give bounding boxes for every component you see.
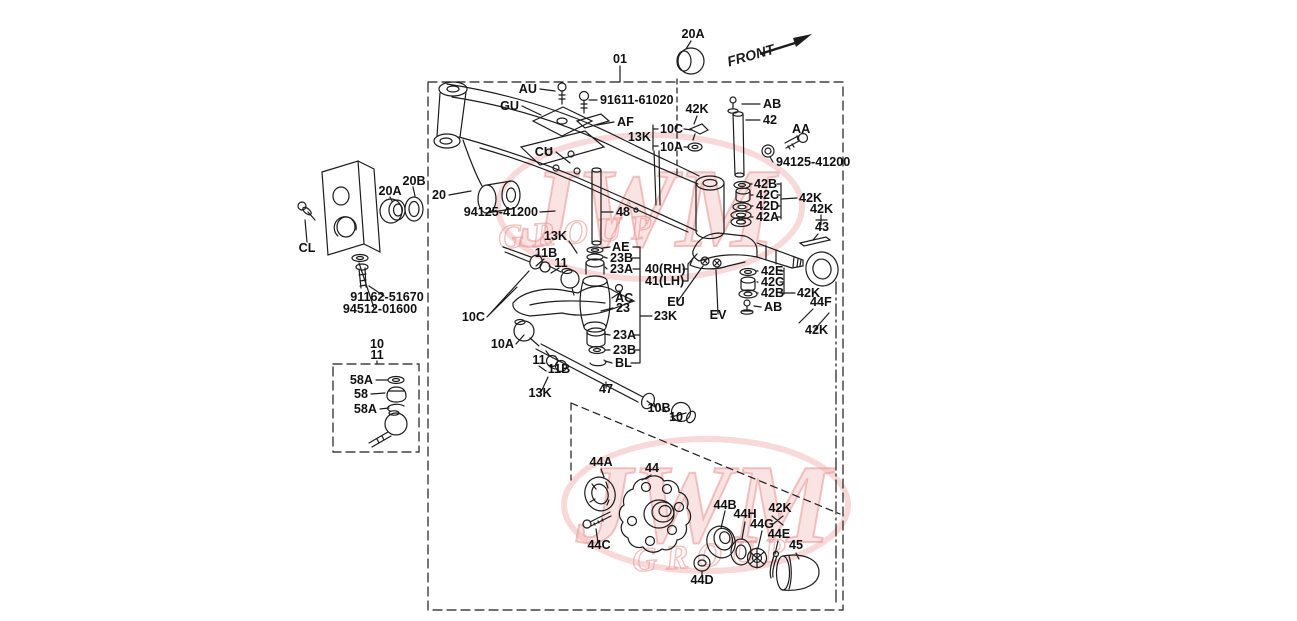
part-label-11: 11 bbox=[532, 353, 545, 367]
front-label: FRONT bbox=[725, 40, 777, 69]
part-label-41-lh-: 41(LH) bbox=[645, 274, 684, 288]
part-label-58: 58 bbox=[354, 387, 368, 401]
part-label-ab: AB bbox=[764, 300, 782, 314]
part-label-23b: 23B bbox=[613, 343, 636, 357]
front-direction-indicator: FRONT bbox=[725, 34, 812, 70]
part-label-11b: 11B bbox=[548, 362, 570, 376]
part-label-44a: 44A bbox=[589, 455, 612, 469]
part-label-42k: 42K bbox=[768, 501, 791, 515]
spring-seat-bolt-au bbox=[558, 83, 566, 104]
part-label-58a: 58A bbox=[354, 402, 377, 416]
part-label-13k: 13K bbox=[628, 130, 651, 144]
part-label-94125-41200: 94125-41200 bbox=[464, 205, 538, 219]
part-label-42k: 42K bbox=[810, 202, 833, 216]
lower-kingpin-bushings bbox=[739, 269, 757, 315]
part-label-42b: 42B bbox=[761, 286, 784, 300]
part-label-47: 47 bbox=[599, 382, 613, 396]
part-label-44d: 44D bbox=[690, 573, 713, 587]
part-label-20a: 20A bbox=[681, 27, 704, 41]
part-label-20a: 20A bbox=[378, 184, 401, 198]
part-label-44e: 44E bbox=[768, 527, 790, 541]
part-label-11: 11 bbox=[370, 348, 383, 362]
spring-seat-bolt-91611 bbox=[580, 92, 589, 114]
exploded-parts-diagram: JWM GROUP JWM GROUP bbox=[0, 0, 1297, 621]
ring-20b-left bbox=[405, 197, 423, 221]
part-label-cl: CL bbox=[299, 241, 316, 255]
part-label-42k: 42K bbox=[805, 323, 828, 337]
part-label-cu: CU bbox=[535, 145, 553, 159]
part-label-94125-41200: 94125-41200 bbox=[776, 155, 850, 169]
part-label-44f: 44F bbox=[810, 295, 832, 309]
part-label-42: 42 bbox=[763, 113, 777, 127]
part-label-ab: AB bbox=[763, 97, 781, 111]
part-label-10c: 10C bbox=[660, 122, 683, 136]
part-labels: 0120AAU91611-61020GUAFCU42KAB42AA94125-4… bbox=[299, 27, 851, 587]
part-label-23k: 23K bbox=[654, 309, 677, 323]
part-label-44c: 44C bbox=[587, 538, 610, 552]
part-label-eu: EU bbox=[667, 295, 685, 309]
part-label-94512-01600: 94512-01600 bbox=[343, 302, 417, 316]
part-label-42k: 42K bbox=[685, 102, 708, 116]
part-label-10b: 10B bbox=[647, 401, 670, 415]
part-label-43: 43 bbox=[815, 220, 829, 234]
part-label-48: 48 bbox=[616, 205, 630, 219]
part-label-aa: AA bbox=[792, 122, 810, 136]
part-label-42a: 42A bbox=[756, 210, 779, 224]
part-label-58a: 58A bbox=[350, 373, 373, 387]
part-label-10: 10 bbox=[669, 410, 683, 424]
part-label-23a: 23A bbox=[613, 328, 636, 342]
plate-bolt-cl bbox=[298, 202, 315, 220]
mounting-plate bbox=[322, 161, 380, 255]
part-label-gu: GU bbox=[500, 99, 519, 113]
part-label-20b: 20B bbox=[402, 174, 425, 188]
part-label-10a: 10A bbox=[660, 140, 683, 154]
part-label-ev: EV bbox=[710, 308, 727, 322]
part-label-20: 20 bbox=[432, 188, 446, 202]
front-arrow-icon bbox=[793, 34, 812, 47]
part-label-bl: BL bbox=[615, 356, 632, 370]
part-label-01: 01 bbox=[613, 52, 627, 66]
part-label-13k: 13K bbox=[544, 229, 567, 243]
parts-catalog-page: JWM GROUP JWM GROUP bbox=[0, 0, 1297, 621]
part-label-au: AU bbox=[519, 82, 537, 96]
part-label-91611-61020: 91611-61020 bbox=[600, 93, 674, 107]
part-label-af: AF bbox=[617, 115, 634, 129]
part-label-11: 11 bbox=[554, 256, 567, 270]
part-label-23a: 23A bbox=[610, 262, 633, 276]
bushing-20a-left bbox=[380, 199, 405, 223]
part-label-13k: 13K bbox=[528, 386, 551, 400]
part-label-45: 45 bbox=[789, 538, 803, 552]
part-label-10a: 10A bbox=[491, 337, 514, 351]
part-label-44: 44 bbox=[645, 461, 659, 475]
part-label-10c: 10C bbox=[462, 310, 485, 324]
part-label-23: 23 bbox=[616, 301, 630, 315]
